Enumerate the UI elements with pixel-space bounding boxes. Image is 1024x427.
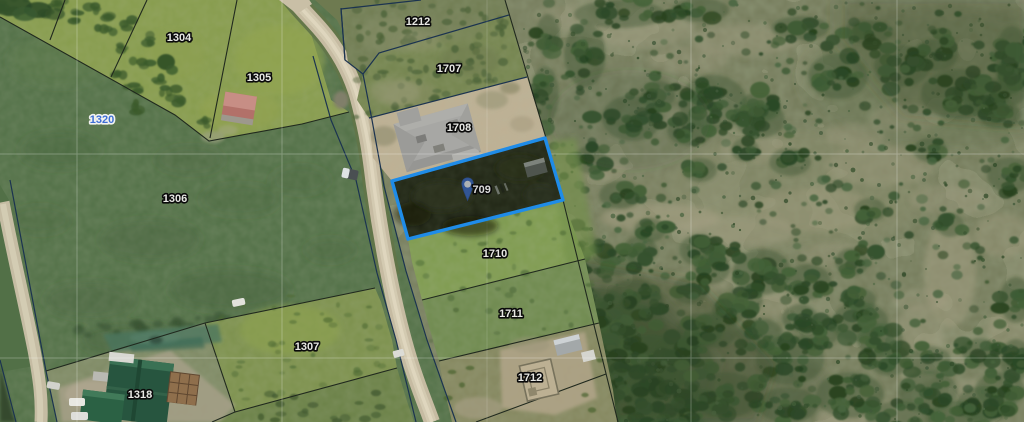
svg-text:1712: 1712: [518, 372, 542, 384]
svg-text:1212: 1212: [406, 16, 430, 28]
svg-text:1306: 1306: [163, 193, 187, 205]
svg-text:1708: 1708: [447, 122, 471, 134]
svg-text:1307: 1307: [295, 341, 319, 353]
svg-text:1318: 1318: [128, 389, 152, 401]
svg-text:1320: 1320: [90, 114, 114, 126]
svg-text:1707: 1707: [437, 63, 461, 75]
svg-text:1305: 1305: [247, 72, 271, 84]
svg-text:1710: 1710: [483, 248, 507, 260]
svg-text:1304: 1304: [167, 32, 192, 44]
svg-text:709: 709: [473, 184, 491, 196]
svg-text:1711: 1711: [499, 308, 523, 320]
